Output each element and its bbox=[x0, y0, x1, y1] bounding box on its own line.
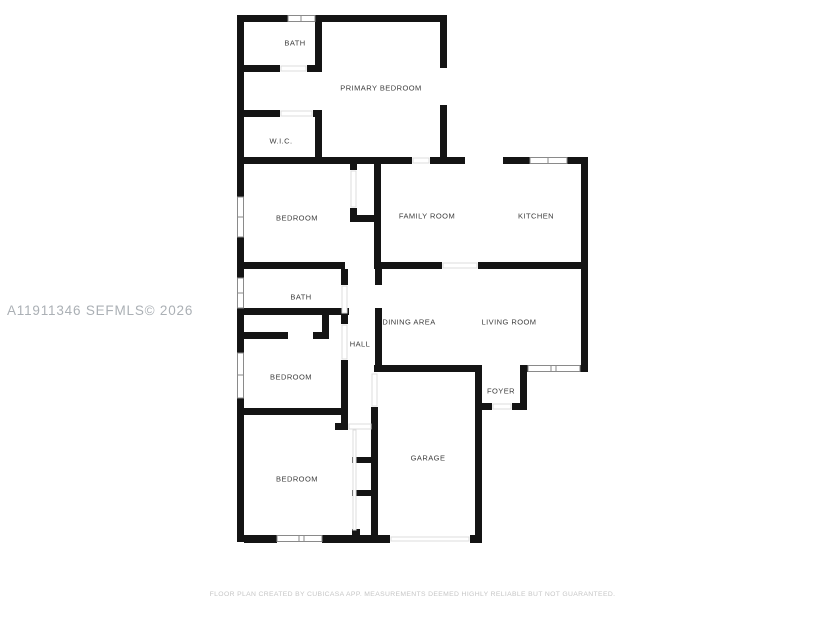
window bbox=[528, 366, 580, 372]
door-opening bbox=[281, 111, 312, 116]
room-label-foyer: FOYER bbox=[487, 387, 515, 396]
wall bbox=[244, 332, 288, 339]
room-label-hall: HALL bbox=[350, 340, 371, 349]
wall bbox=[475, 403, 492, 410]
wall bbox=[374, 262, 442, 269]
wall bbox=[475, 365, 482, 542]
wall bbox=[244, 308, 349, 315]
wall bbox=[470, 535, 482, 543]
wall bbox=[440, 20, 447, 68]
wall bbox=[581, 157, 588, 372]
cased-opening bbox=[443, 263, 477, 268]
wall bbox=[350, 164, 357, 170]
door-opening bbox=[342, 286, 347, 313]
wall bbox=[244, 157, 412, 164]
wall bbox=[244, 110, 280, 117]
room-label-bedroom-2: BEDROOM bbox=[270, 373, 312, 382]
wall bbox=[322, 535, 390, 543]
wall bbox=[520, 365, 528, 372]
wall bbox=[244, 535, 277, 543]
room-label-family-room: FAMILY ROOM bbox=[399, 212, 455, 221]
wall bbox=[244, 262, 345, 269]
wall bbox=[237, 15, 288, 22]
room-label-garage: GARAGE bbox=[411, 454, 446, 463]
room-label-bedroom-3: BEDROOM bbox=[276, 475, 318, 484]
garage-door-opening bbox=[391, 537, 469, 541]
wall bbox=[341, 360, 348, 430]
wall bbox=[430, 157, 465, 164]
wall bbox=[341, 269, 348, 285]
wall bbox=[335, 423, 348, 430]
wall bbox=[244, 65, 280, 72]
wall bbox=[375, 308, 382, 365]
wall bbox=[440, 105, 447, 163]
walls bbox=[237, 15, 588, 543]
wall bbox=[371, 407, 378, 542]
door-opening bbox=[413, 158, 429, 163]
door-opening bbox=[372, 374, 377, 406]
door-opening bbox=[281, 66, 306, 71]
windows bbox=[238, 16, 581, 542]
wall bbox=[315, 20, 322, 72]
wall bbox=[580, 365, 588, 372]
wall bbox=[512, 403, 527, 410]
floor-plan: BATH PRIMARY BEDROOM W.I.C. BEDROOM FAMI… bbox=[0, 0, 825, 619]
wall bbox=[315, 115, 322, 160]
door-opening bbox=[351, 171, 356, 207]
mls-watermark: A11911346 SEFMLS© 2026 bbox=[7, 303, 193, 318]
room-label-bath-1: BATH bbox=[284, 39, 305, 48]
wall bbox=[478, 262, 581, 269]
wall bbox=[374, 164, 381, 263]
room-label-living-room: LIVING ROOM bbox=[482, 318, 537, 327]
door-opening bbox=[342, 325, 347, 359]
wall bbox=[375, 269, 382, 285]
wall bbox=[313, 332, 329, 339]
front-door-opening bbox=[493, 404, 511, 409]
wall bbox=[307, 65, 322, 72]
room-label-dining-area: DINING AREA bbox=[382, 318, 435, 327]
room-label-kitchen: KITCHEN bbox=[518, 212, 554, 221]
wall bbox=[503, 157, 530, 164]
wall bbox=[341, 314, 348, 324]
room-label-wic: W.I.C. bbox=[269, 137, 292, 146]
wall bbox=[315, 15, 447, 22]
wall bbox=[374, 365, 482, 372]
wall bbox=[244, 408, 341, 415]
door-opening bbox=[349, 424, 371, 429]
wall bbox=[520, 372, 527, 407]
room-label-bedroom-middle: BEDROOM bbox=[276, 214, 318, 223]
room-label-primary-bedroom: PRIMARY BEDROOM bbox=[340, 84, 422, 93]
room-label-bath-2: BATH bbox=[290, 293, 311, 302]
disclaimer-text: FLOOR PLAN CREATED BY CUBICASA APP. MEAS… bbox=[0, 591, 825, 598]
closet-door-line bbox=[353, 430, 356, 530]
